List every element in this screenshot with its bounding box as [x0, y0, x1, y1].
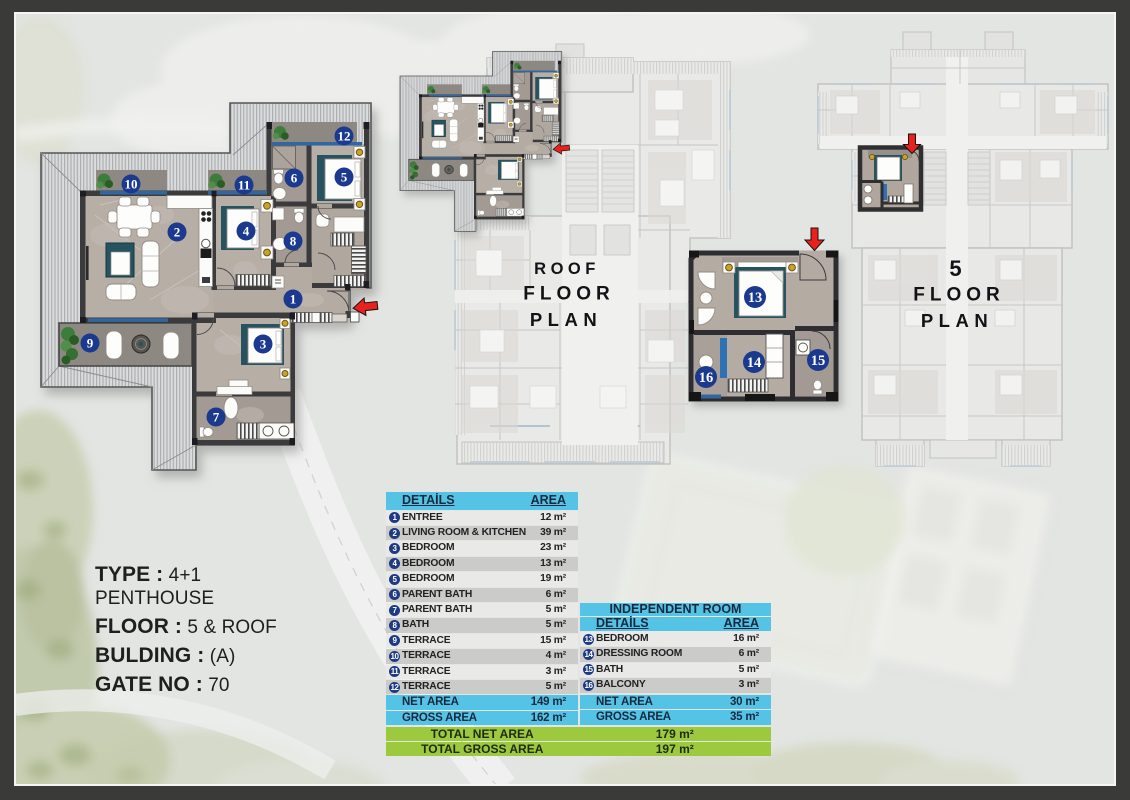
- svg-text:ROOF: ROOF: [534, 260, 600, 278]
- svg-text:PLAN: PLAN: [921, 310, 993, 331]
- svg-text:6: 6: [291, 171, 298, 186]
- svg-text:11: 11: [238, 178, 250, 193]
- svg-text:PLAN: PLAN: [530, 309, 602, 330]
- svg-text:10: 10: [125, 177, 138, 192]
- svg-text:8: 8: [290, 234, 297, 249]
- svg-text:3: 3: [260, 337, 267, 352]
- svg-text:15: 15: [811, 353, 826, 369]
- svg-text:13: 13: [748, 290, 763, 306]
- svg-text:2: 2: [174, 225, 181, 240]
- svg-text:5: 5: [949, 256, 966, 281]
- svg-text:4: 4: [243, 224, 250, 239]
- svg-text:14: 14: [747, 355, 762, 371]
- svg-text:7: 7: [213, 410, 220, 425]
- svg-text:1: 1: [290, 292, 297, 307]
- svg-text:FLOOR: FLOOR: [523, 284, 615, 305]
- svg-text:5: 5: [341, 170, 348, 185]
- svg-text:9: 9: [87, 336, 94, 351]
- svg-text:16: 16: [699, 370, 714, 386]
- svg-text:FLOOR: FLOOR: [913, 285, 1005, 306]
- svg-text:12: 12: [338, 129, 351, 144]
